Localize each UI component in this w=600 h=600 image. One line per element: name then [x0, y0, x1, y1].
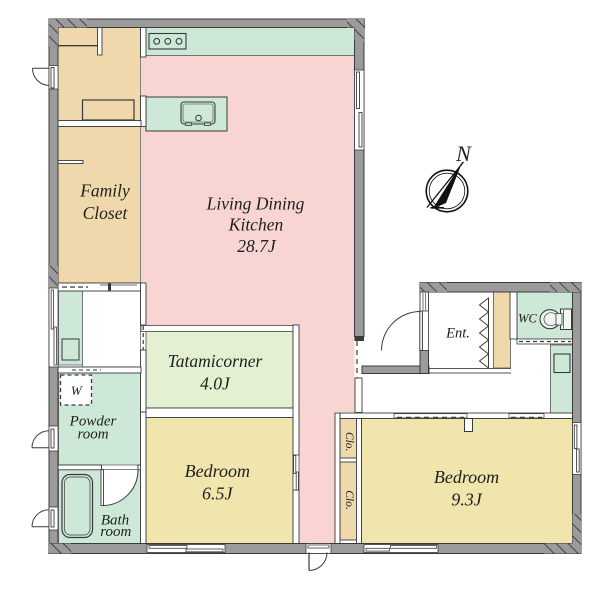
svg-text:Bedroom: Bedroom [434, 467, 499, 487]
svg-text:Tatamicorner: Tatamicorner [168, 351, 263, 371]
svg-text:room: room [77, 427, 108, 443]
svg-text:Clo.: Clo. [343, 432, 355, 452]
svg-text:Clo.: Clo. [343, 490, 355, 510]
svg-text:28.7J: 28.7J [237, 236, 277, 256]
svg-text:W: W [71, 383, 83, 398]
svg-text:room: room [100, 524, 131, 540]
svg-text:Family: Family [79, 181, 130, 201]
svg-text:Closet: Closet [83, 203, 129, 223]
svg-text:N: N [455, 141, 472, 166]
svg-text:6.5J: 6.5J [202, 483, 234, 503]
svg-text:WC: WC [518, 312, 537, 326]
svg-text:Kitchen: Kitchen [228, 215, 284, 235]
svg-text:Living Dining: Living Dining [206, 194, 305, 214]
svg-text:4.0J: 4.0J [200, 374, 231, 394]
svg-text:9.3J: 9.3J [451, 490, 483, 510]
svg-text:Ent.: Ent. [445, 325, 470, 341]
svg-text:Bedroom: Bedroom [185, 461, 250, 481]
